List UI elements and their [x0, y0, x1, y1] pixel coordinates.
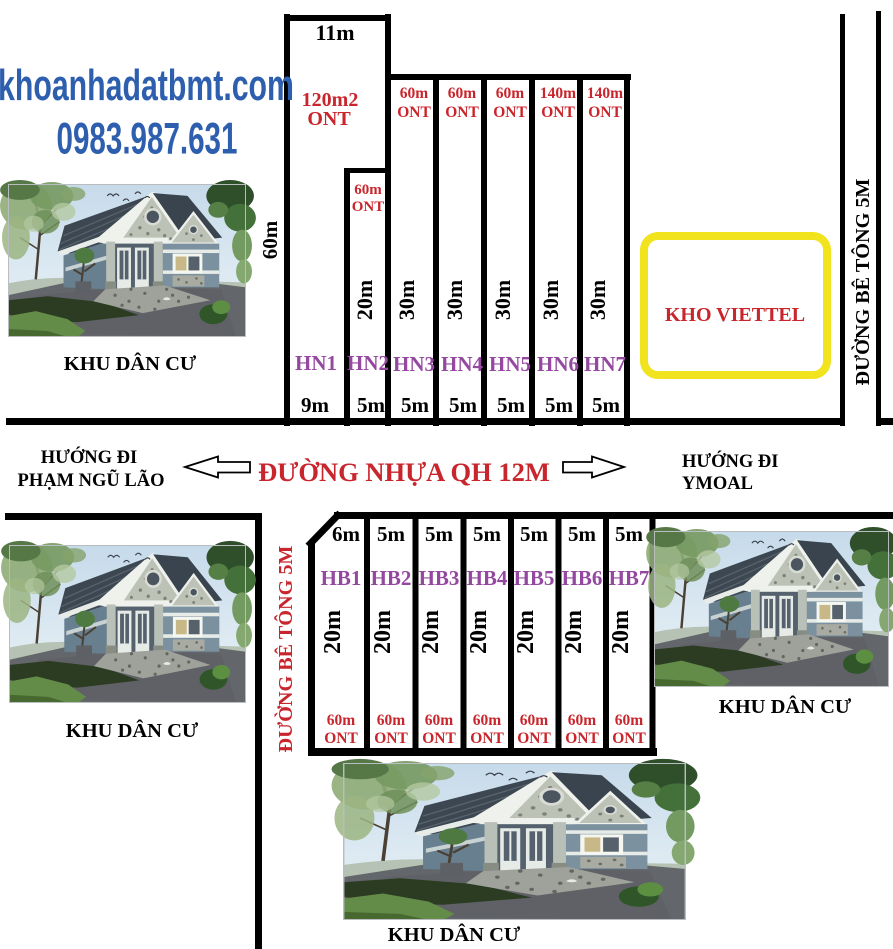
- svg-text:HN2: HN2: [347, 351, 389, 375]
- svg-text:20m: 20m: [561, 610, 587, 654]
- svg-text:HB1: HB1: [321, 566, 362, 590]
- svg-text:ONT: ONT: [612, 730, 646, 747]
- svg-text:ONT: ONT: [374, 730, 408, 747]
- svg-text:60m: 60m: [377, 712, 406, 729]
- svg-text:ONT: ONT: [307, 108, 351, 130]
- svg-text:30m: 30m: [538, 280, 563, 320]
- svg-text:11m: 11m: [315, 20, 354, 45]
- svg-text:KHU DÂN CƯ: KHU DÂN CƯ: [719, 694, 852, 718]
- svg-text:ONT: ONT: [493, 104, 527, 121]
- svg-text:30m: 30m: [490, 280, 515, 320]
- svg-text:KHU DÂN CƯ: KHU DÂN CƯ: [64, 351, 197, 375]
- svg-text:60m: 60m: [354, 182, 382, 198]
- svg-text:HB5: HB5: [514, 566, 555, 590]
- svg-text:HƯỚNG ĐI: HƯỚNG ĐI: [41, 446, 137, 468]
- svg-text:5m: 5m: [545, 393, 574, 417]
- svg-text:5m: 5m: [401, 393, 430, 417]
- svg-text:HN3: HN3: [393, 352, 435, 376]
- svg-text:20m: 20m: [466, 610, 492, 654]
- svg-text:KHU DÂN CƯ: KHU DÂN CƯ: [66, 718, 199, 742]
- svg-text:20m: 20m: [513, 610, 539, 654]
- svg-text:60m: 60m: [258, 220, 282, 259]
- svg-text:HB6: HB6: [562, 566, 603, 590]
- svg-text:KHO VIETTEL: KHO VIETTEL: [665, 304, 805, 326]
- svg-text:HN5: HN5: [489, 352, 531, 376]
- svg-text:ONT: ONT: [324, 730, 358, 747]
- svg-text:HN6: HN6: [537, 352, 579, 376]
- svg-text:HB2: HB2: [371, 566, 412, 590]
- svg-text:60m: 60m: [425, 712, 454, 729]
- svg-text:60m: 60m: [496, 85, 525, 102]
- svg-text:5m: 5m: [473, 522, 502, 546]
- svg-text:YMOAL: YMOAL: [682, 474, 753, 494]
- svg-text:5m: 5m: [377, 522, 406, 546]
- svg-text:HB3: HB3: [419, 566, 460, 590]
- svg-text:khoanhadatbmt.com: khoanhadatbmt.com: [0, 62, 294, 111]
- svg-text:30m: 30m: [394, 280, 419, 320]
- svg-text:HB4: HB4: [467, 566, 508, 590]
- svg-text:5m: 5m: [357, 393, 386, 417]
- svg-text:5m: 5m: [592, 393, 621, 417]
- svg-text:20m: 20m: [418, 610, 444, 654]
- svg-text:PHẠM NGŨ LÃO: PHẠM NGŨ LÃO: [18, 469, 165, 491]
- svg-text:20m: 20m: [320, 610, 346, 654]
- svg-text:30m: 30m: [585, 280, 610, 320]
- svg-text:HƯỚNG ĐI: HƯỚNG ĐI: [682, 450, 778, 472]
- svg-text:HN1: HN1: [295, 351, 337, 375]
- svg-text:20m: 20m: [352, 280, 377, 320]
- svg-text:KHU DÂN CƯ: KHU DÂN CƯ: [388, 922, 521, 946]
- svg-text:20m: 20m: [370, 610, 396, 654]
- svg-text:0983.987.631: 0983.987.631: [57, 115, 238, 164]
- svg-text:9m: 9m: [301, 393, 330, 417]
- svg-text:ĐƯỜNG BÊ TÔNG 5M: ĐƯỜNG BÊ TÔNG 5M: [850, 179, 874, 386]
- svg-text:HN4: HN4: [441, 352, 484, 376]
- svg-text:ONT: ONT: [565, 730, 599, 747]
- svg-text:5m: 5m: [425, 522, 454, 546]
- svg-text:5m: 5m: [449, 393, 478, 417]
- svg-text:30m: 30m: [442, 280, 467, 320]
- svg-text:ONT: ONT: [397, 104, 431, 121]
- svg-text:5m: 5m: [520, 522, 549, 546]
- svg-text:HB7: HB7: [609, 566, 650, 590]
- svg-text:60m: 60m: [568, 712, 597, 729]
- svg-text:ONT: ONT: [588, 104, 622, 121]
- svg-text:60m: 60m: [400, 85, 429, 102]
- svg-text:ONT: ONT: [517, 730, 551, 747]
- svg-text:60m: 60m: [615, 712, 644, 729]
- svg-text:ONT: ONT: [470, 730, 504, 747]
- svg-text:ĐƯỜNG BÊ TÔNG 5M: ĐƯỜNG BÊ TÔNG 5M: [273, 546, 297, 753]
- svg-text:140m: 140m: [540, 85, 576, 102]
- svg-text:ONT: ONT: [445, 104, 479, 121]
- svg-text:6m: 6m: [332, 522, 361, 546]
- svg-text:ONT: ONT: [352, 199, 385, 215]
- svg-text:HN7: HN7: [584, 352, 626, 376]
- svg-text:20m: 20m: [608, 610, 634, 654]
- svg-text:60m: 60m: [327, 712, 356, 729]
- svg-text:ONT: ONT: [422, 730, 456, 747]
- svg-text:60m: 60m: [520, 712, 549, 729]
- svg-text:5m: 5m: [497, 393, 526, 417]
- svg-text:140m: 140m: [587, 85, 623, 102]
- svg-text:60m: 60m: [473, 712, 502, 729]
- svg-text:ĐƯỜNG NHỰA QH 12M: ĐƯỜNG NHỰA QH 12M: [258, 457, 550, 487]
- svg-text:60m: 60m: [448, 85, 477, 102]
- svg-text:5m: 5m: [615, 522, 644, 546]
- svg-text:ONT: ONT: [541, 104, 575, 121]
- svg-text:5m: 5m: [568, 522, 597, 546]
